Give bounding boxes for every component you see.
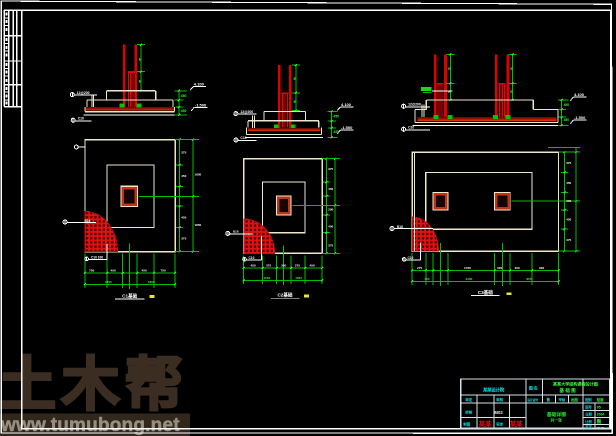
svg-text:450: 450 [566, 181, 571, 185]
svg-text:某某设计院: 某某设计院 [482, 387, 505, 394]
svg-text:1850: 1850 [105, 280, 112, 284]
svg-text:300: 300 [328, 208, 333, 212]
svg-text:375: 375 [266, 264, 271, 268]
svg-text:C10: C10 [240, 136, 246, 140]
svg-text:设计证号: 设计证号 [527, 397, 538, 402]
svg-text:450: 450 [328, 225, 333, 229]
svg-text:基础详图: 基础详图 [547, 411, 566, 418]
svg-text:12@200: 12@200 [240, 110, 253, 114]
svg-text:比例: 比例 [585, 419, 592, 424]
svg-text:450: 450 [181, 109, 187, 113]
svg-text:450: 450 [564, 103, 570, 107]
svg-text:审核: 审核 [496, 397, 503, 402]
svg-text:图别: 图别 [585, 397, 592, 402]
svg-text:12@200: 12@200 [77, 91, 90, 95]
svg-text:375: 375 [181, 151, 186, 155]
svg-text:450: 450 [111, 268, 116, 272]
svg-text:C2基础: C2基础 [277, 292, 292, 299]
svg-text:450: 450 [142, 268, 147, 272]
svg-text:4.100: 4.100 [574, 92, 585, 97]
svg-text:E: E [510, 89, 513, 94]
svg-text:750: 750 [89, 268, 94, 272]
svg-text:05: 05 [597, 405, 601, 409]
svg-text:某某: 某某 [510, 419, 523, 428]
svg-text:1550: 1550 [264, 276, 271, 280]
svg-text:B16: B16 [233, 230, 239, 234]
svg-text:图名: 图名 [529, 384, 539, 391]
svg-text:12@200: 12@200 [408, 102, 421, 106]
svg-text:750: 750 [161, 268, 166, 272]
svg-text:375: 375 [566, 238, 571, 242]
svg-text:450: 450 [251, 264, 256, 268]
svg-text:1850: 1850 [194, 223, 201, 227]
svg-text:E: E [510, 66, 513, 71]
svg-text:C10 100: C10 100 [91, 256, 103, 260]
svg-text:375: 375 [328, 244, 333, 248]
svg-text:审定: 审定 [465, 397, 473, 402]
svg-text:基础图: 基础图 [560, 387, 578, 394]
svg-text:1850: 1850 [194, 173, 201, 177]
svg-text:4.100: 4.100 [194, 82, 205, 87]
svg-text:某某: 某某 [479, 419, 492, 428]
svg-text:375: 375 [328, 167, 333, 171]
svg-text:700: 700 [425, 277, 430, 281]
svg-text:制图: 制图 [463, 421, 471, 426]
svg-text:375: 375 [181, 237, 186, 241]
svg-text:300: 300 [281, 264, 286, 268]
svg-text:B16: B16 [397, 225, 403, 229]
svg-text:450: 450 [566, 218, 571, 222]
svg-text:450: 450 [333, 130, 339, 134]
svg-text:共一张: 共一张 [551, 418, 563, 423]
svg-text:375: 375 [295, 264, 300, 268]
svg-text:1850: 1850 [148, 280, 155, 284]
svg-text:校核: 校核 [465, 410, 473, 415]
svg-text:1700: 1700 [464, 266, 471, 270]
svg-text:4.100: 4.100 [341, 102, 352, 107]
svg-text:375: 375 [566, 161, 571, 165]
svg-text:950: 950 [527, 277, 532, 281]
svg-text:450: 450 [333, 115, 339, 119]
svg-text:1550: 1550 [295, 276, 302, 280]
svg-text:2004: 2004 [597, 413, 605, 417]
svg-text:日期: 日期 [585, 412, 592, 417]
svg-text:450: 450 [181, 216, 186, 220]
svg-text:E: E [139, 79, 142, 84]
svg-text:M02: M02 [494, 410, 503, 415]
svg-text:图号: 图号 [585, 404, 592, 409]
svg-text:-1.500: -1.500 [574, 115, 586, 120]
svg-text:土木帮: 土木帮 [0, 353, 189, 418]
svg-text:某某大学结构课程设计图: 某某大学结构课程设计图 [553, 381, 598, 388]
svg-text:E: E [294, 76, 297, 81]
svg-text:-1.500: -1.500 [195, 102, 207, 107]
svg-text:300: 300 [497, 266, 502, 270]
svg-text:E: E [294, 99, 297, 104]
svg-text:450: 450 [310, 264, 315, 268]
svg-text:C10: C10 [78, 116, 84, 120]
svg-text:C3基础: C3基础 [478, 289, 493, 296]
svg-text:C10: C10 [249, 256, 255, 260]
svg-text:审定: 审定 [496, 421, 503, 426]
svg-text:450: 450 [181, 174, 186, 178]
svg-text:结施: 结施 [597, 397, 604, 402]
svg-text:450: 450 [515, 266, 520, 270]
svg-text:275: 275 [417, 266, 422, 270]
svg-text:页次: 页次 [585, 424, 592, 429]
svg-text:C10: C10 [408, 125, 414, 129]
svg-text:E: E [448, 66, 451, 71]
svg-text:2400: 2400 [466, 277, 473, 281]
svg-text:900: 900 [539, 266, 544, 270]
svg-text:B16: B16 [85, 219, 91, 223]
svg-text:-1.500: -1.500 [341, 125, 353, 130]
svg-text:— —: — — [597, 425, 605, 429]
svg-text:C10: C10 [408, 256, 414, 260]
svg-text:C1基础: C1基础 [122, 292, 137, 299]
svg-text:甲级: 甲级 [559, 397, 566, 402]
svg-text:图: 图 [597, 418, 602, 425]
svg-text:450: 450 [328, 187, 333, 191]
svg-text:出图: 出图 [571, 397, 578, 402]
svg-text:450: 450 [181, 94, 187, 98]
svg-text:300: 300 [566, 199, 571, 203]
svg-text:450: 450 [564, 118, 570, 122]
svg-text:E: E [139, 57, 142, 62]
